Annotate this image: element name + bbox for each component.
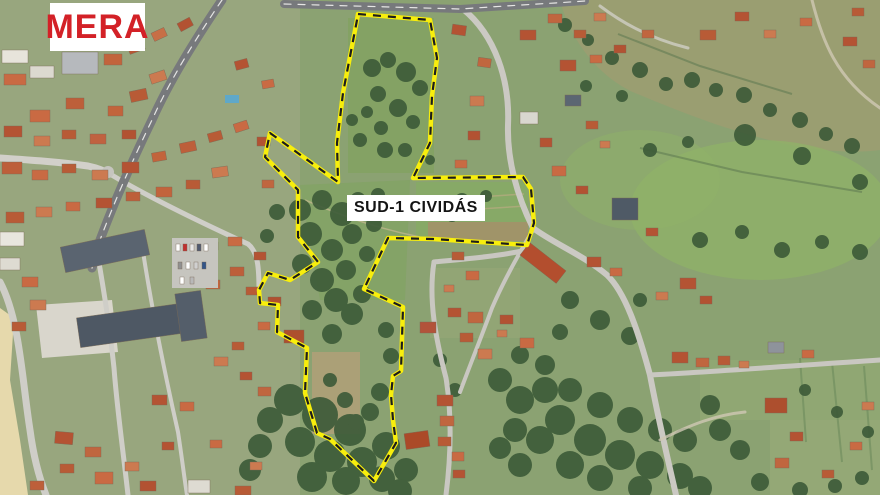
swimming-pool	[225, 95, 239, 103]
mera-label: MERA	[50, 3, 145, 51]
aerial-basemap	[0, 0, 880, 495]
industrial-building	[62, 52, 98, 74]
pyramid-roof-building	[612, 198, 638, 220]
zone-name-label: SUD-1 CIVIDÁS	[347, 195, 485, 221]
zone-name-text: SUD-1 CIVIDÁS	[354, 199, 478, 217]
mera-label-text: MERA	[45, 8, 149, 47]
aerial-map-view: MERA SUD-1 CIVIDÁS	[0, 0, 880, 495]
parking-lot	[172, 238, 218, 288]
